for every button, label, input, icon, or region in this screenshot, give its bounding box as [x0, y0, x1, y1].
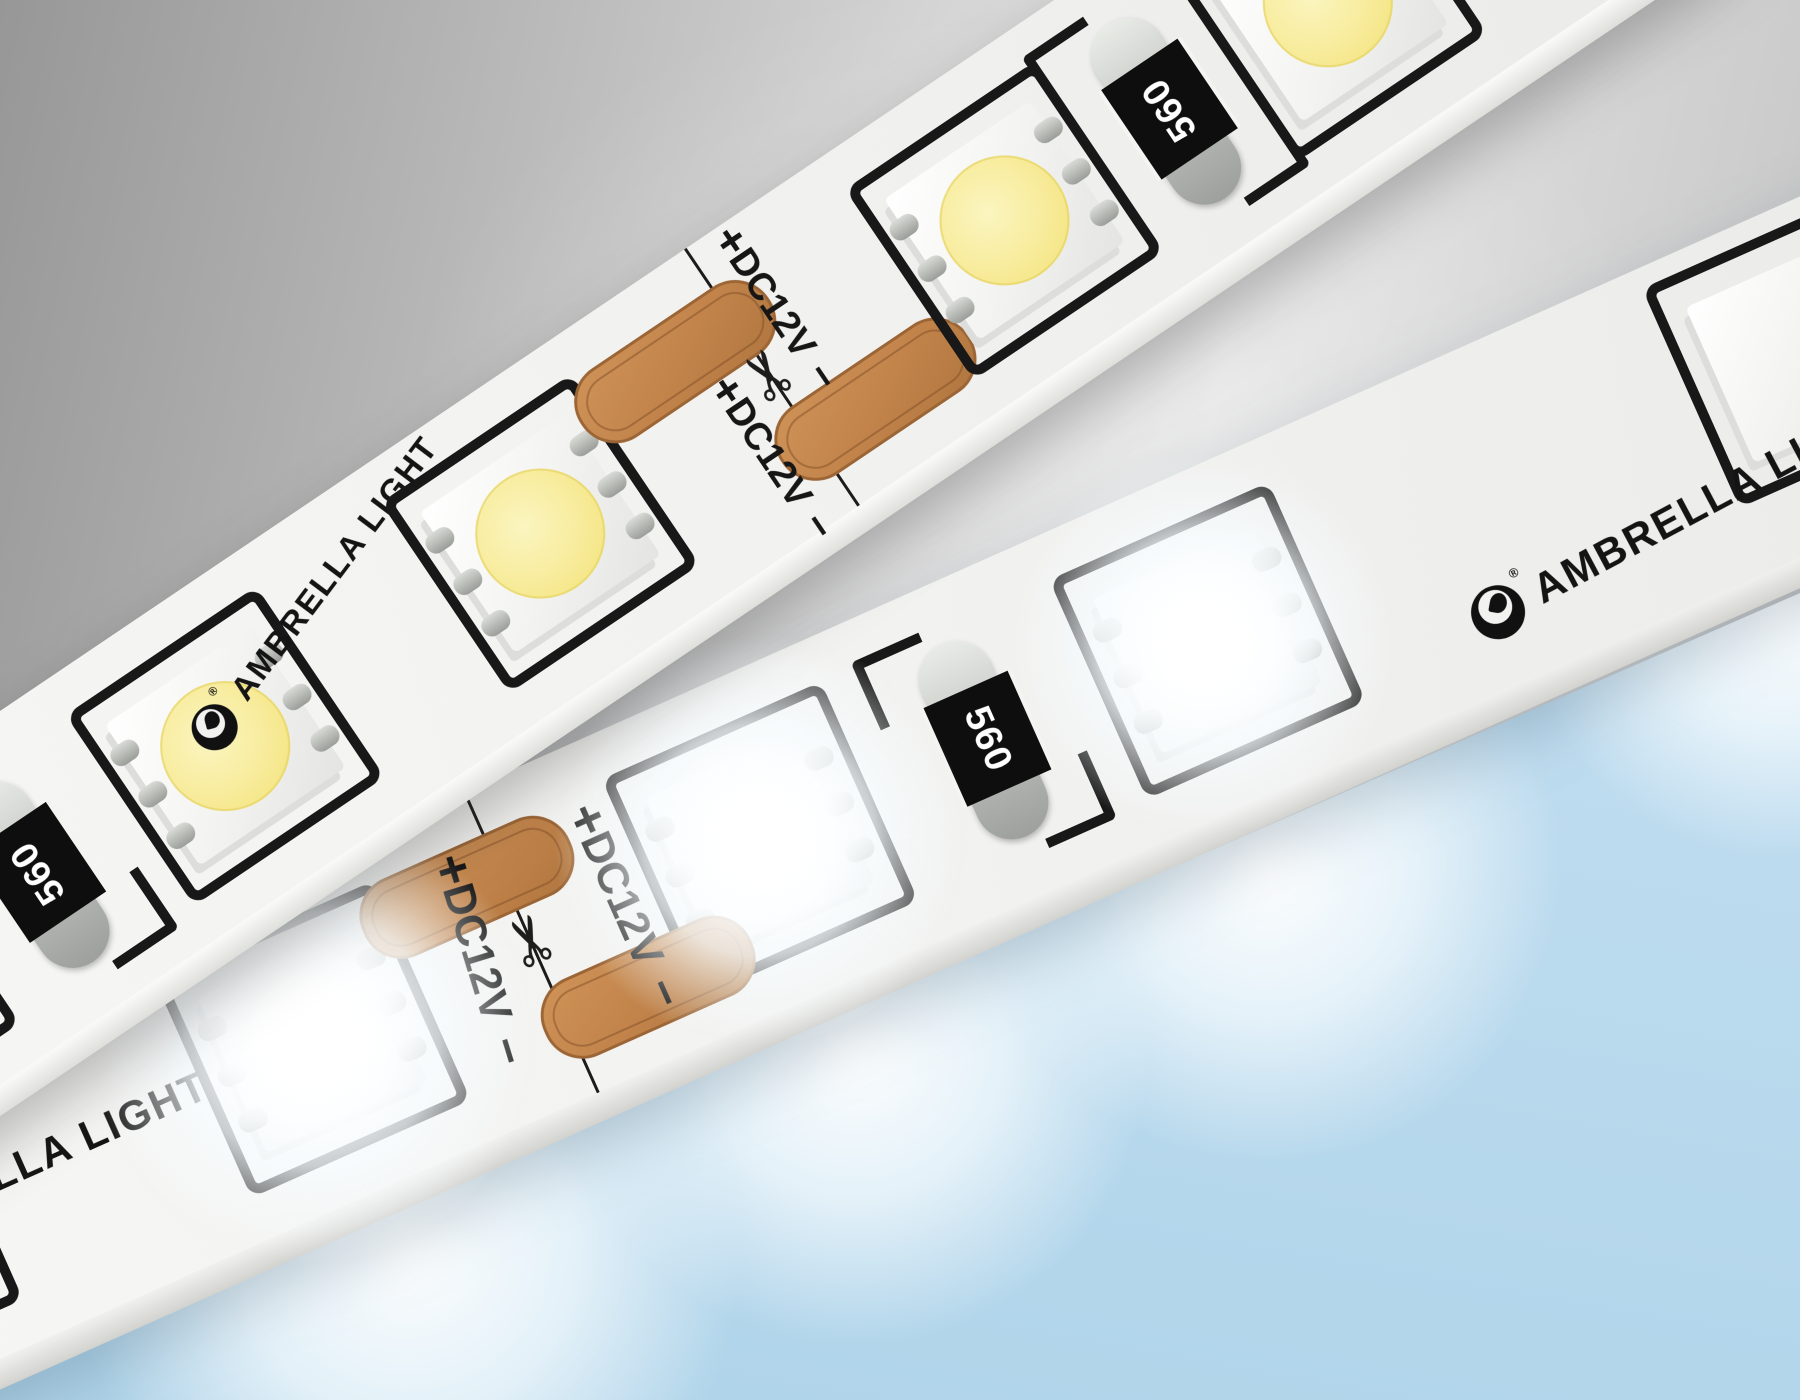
led-strip-product-photo: AMBRELLA LIGHT — [0, 0, 1800, 1400]
resistor-value: 560 — [1, 833, 74, 912]
resistor-value: 560 — [954, 700, 1020, 778]
registered-mark: ® — [205, 684, 222, 699]
resistor-value: 560 — [1133, 70, 1206, 149]
resistor-chip: 560 — [0, 800, 110, 945]
